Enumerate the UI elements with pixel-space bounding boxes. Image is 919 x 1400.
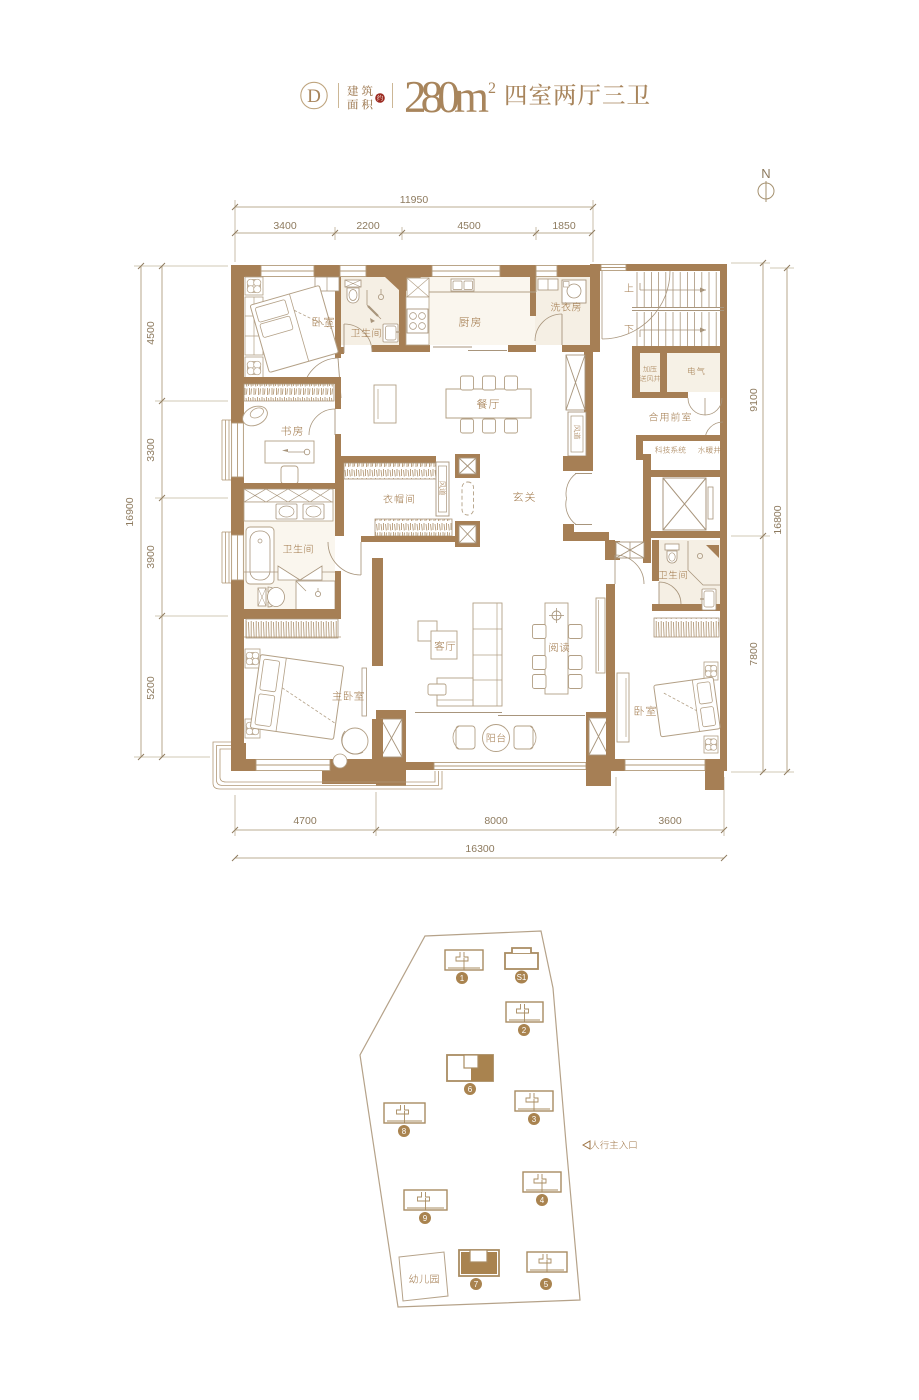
svg-text:8: 8 bbox=[402, 1127, 407, 1136]
svg-text:D: D bbox=[307, 86, 321, 107]
svg-text:4700: 4700 bbox=[293, 815, 317, 827]
svg-text:2: 2 bbox=[488, 80, 496, 97]
svg-text:16900: 16900 bbox=[124, 497, 136, 526]
svg-text:16800: 16800 bbox=[772, 505, 784, 534]
svg-text:S1: S1 bbox=[517, 973, 527, 982]
svg-text:1: 1 bbox=[460, 974, 465, 983]
svg-text:5: 5 bbox=[544, 1280, 549, 1289]
svg-text:4500: 4500 bbox=[457, 220, 481, 232]
svg-text:3900: 3900 bbox=[145, 545, 157, 569]
svg-text:2: 2 bbox=[522, 1026, 527, 1035]
svg-text:7: 7 bbox=[474, 1280, 479, 1289]
svg-text:9100: 9100 bbox=[748, 388, 760, 412]
svg-text:5200: 5200 bbox=[145, 676, 157, 700]
svg-text:7800: 7800 bbox=[748, 642, 760, 666]
svg-text:N: N bbox=[761, 166, 770, 181]
svg-text:1850: 1850 bbox=[552, 220, 576, 232]
svg-text:4: 4 bbox=[540, 1196, 545, 1205]
svg-text:16300: 16300 bbox=[465, 843, 494, 855]
svg-text:3300: 3300 bbox=[145, 438, 157, 462]
svg-text:3: 3 bbox=[532, 1115, 537, 1124]
svg-text:9: 9 bbox=[423, 1214, 428, 1223]
svg-text:2200: 2200 bbox=[356, 220, 380, 232]
svg-text:3400: 3400 bbox=[273, 220, 297, 232]
svg-text:280m: 280m bbox=[404, 72, 489, 122]
svg-text:3600: 3600 bbox=[658, 815, 682, 827]
svg-text:8000: 8000 bbox=[484, 815, 508, 827]
svg-text:4500: 4500 bbox=[145, 321, 157, 345]
svg-text:6: 6 bbox=[468, 1085, 473, 1094]
svg-text:11950: 11950 bbox=[400, 194, 429, 206]
